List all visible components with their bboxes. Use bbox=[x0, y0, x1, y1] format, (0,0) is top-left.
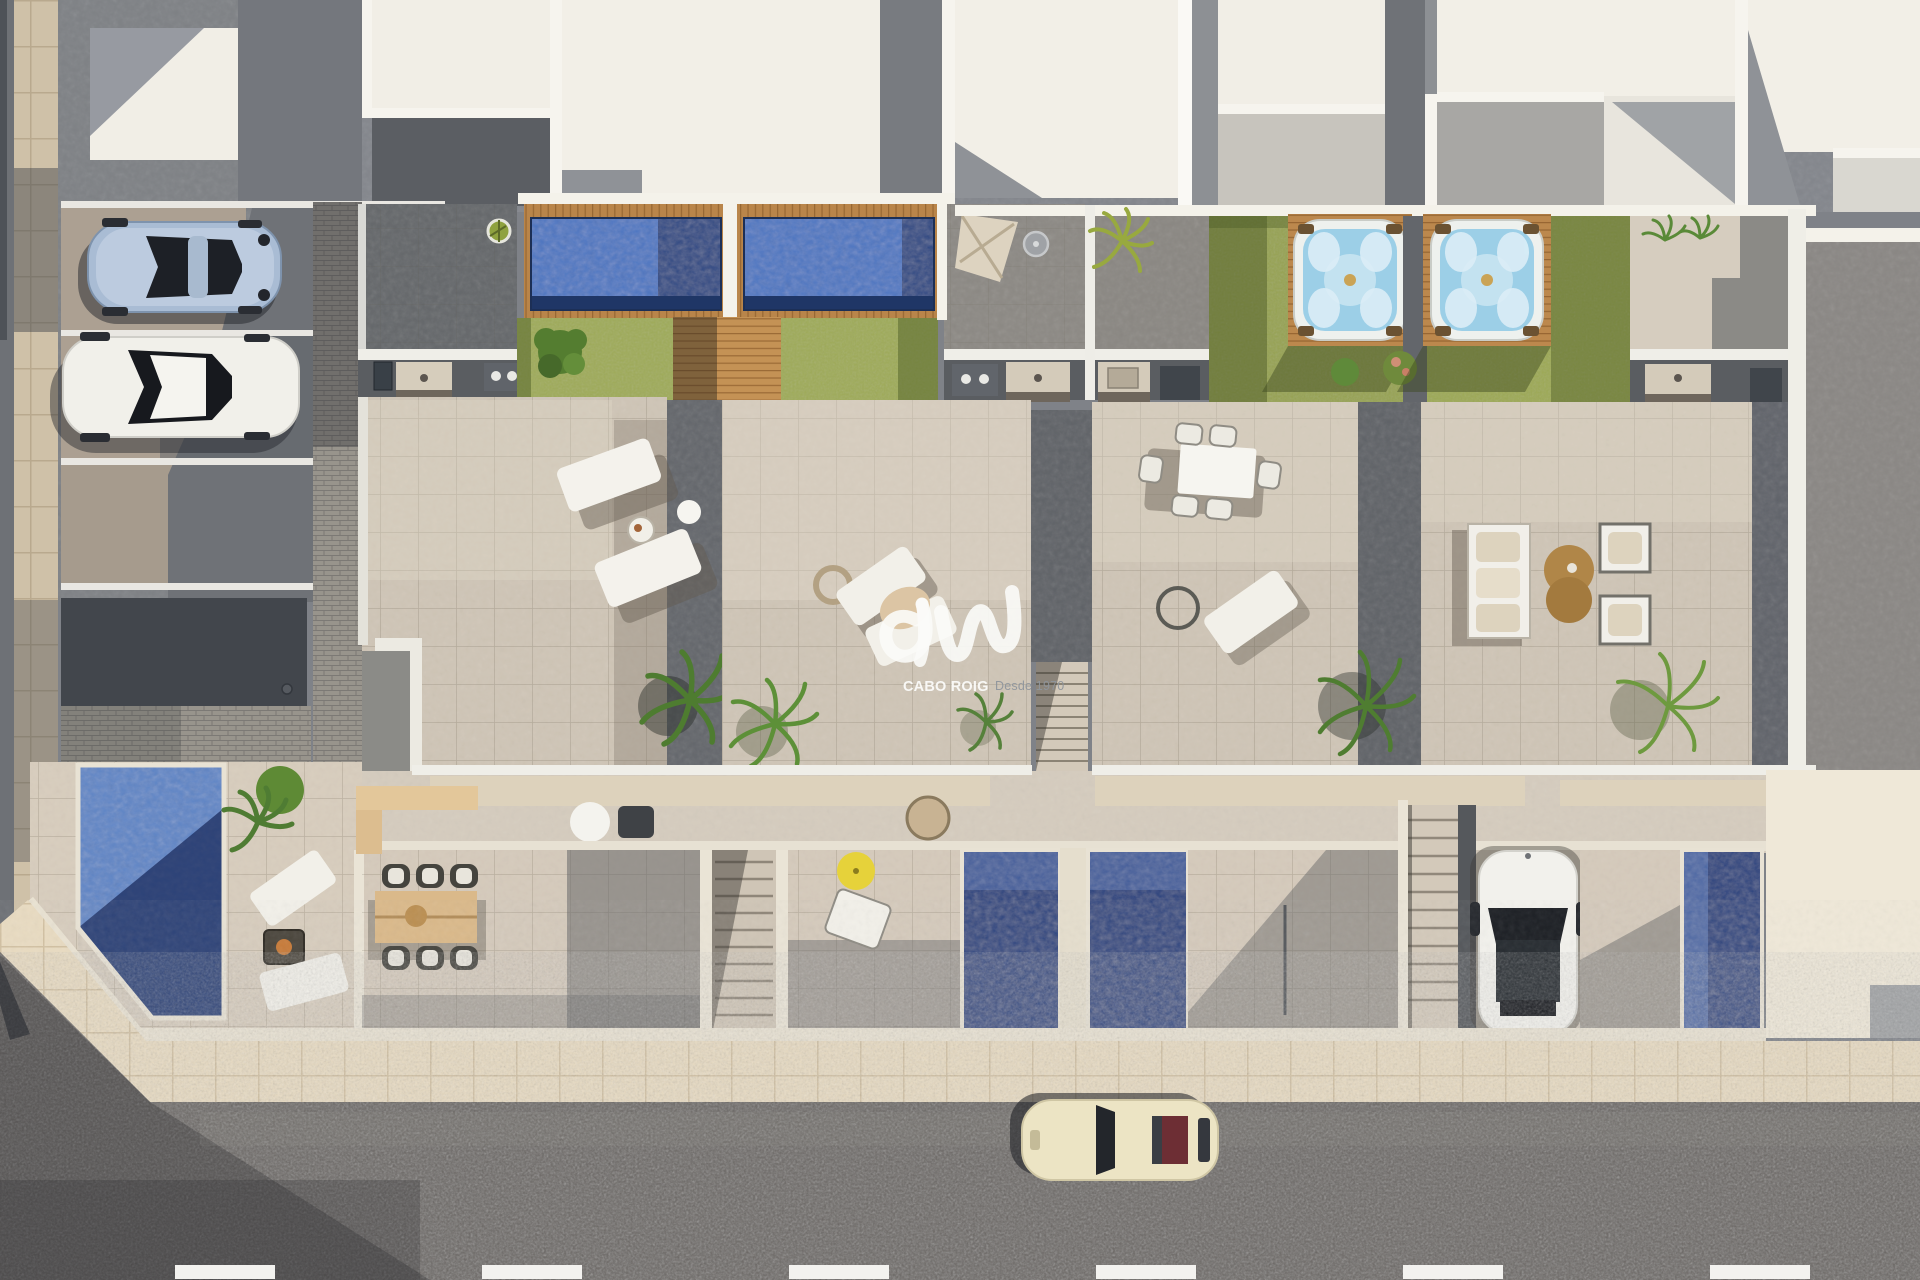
svg-text:CABO ROIG: CABO ROIG bbox=[903, 679, 989, 695]
svg-text:Desde 1970: Desde 1970 bbox=[995, 679, 1064, 693]
